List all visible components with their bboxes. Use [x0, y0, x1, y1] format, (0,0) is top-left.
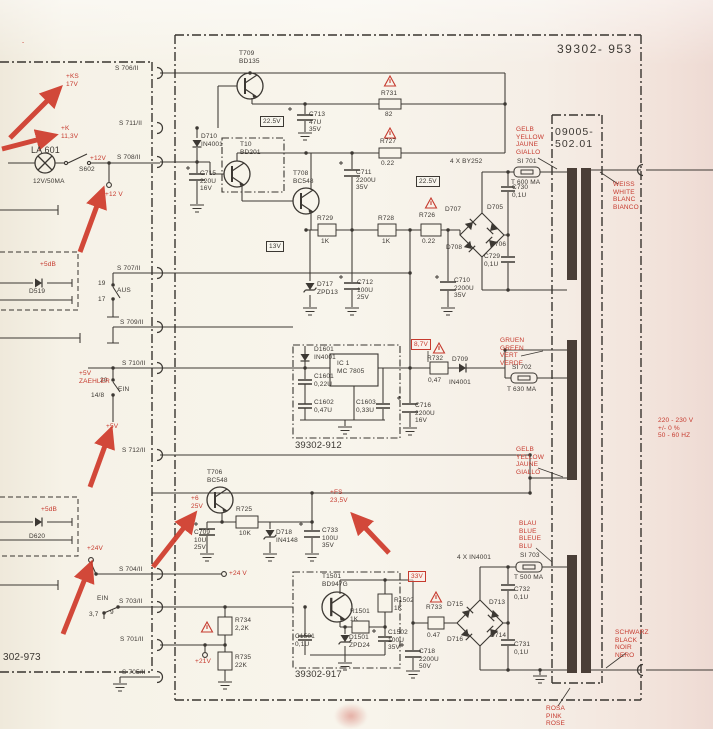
c731-ref: C731 0,1U [514, 641, 530, 656]
sw703-pin37: 3,7 [89, 611, 99, 619]
r731-val: 82 [385, 111, 393, 119]
ann-tick: - [22, 39, 24, 47]
label-layer: 39302- 95309005- 502.01302-97339302-9123… [0, 0, 713, 729]
t708-ref: T708 BC548 [293, 170, 314, 185]
test-22v5-a: 22.5V [260, 116, 284, 127]
r734-ref: R734 2,2K [235, 617, 251, 632]
c709-ref: C709 10U 25V [194, 529, 210, 552]
c729-ref: C729 0,1U [484, 253, 500, 268]
t709-ref: T709 BD135 [239, 50, 260, 65]
ann-21v: +21V [195, 658, 211, 666]
sw710-ein: EIN [118, 386, 129, 394]
conn-s704: S 704/II [119, 566, 143, 574]
wire-gelb-2: GELB YELLOW JAUNE GIALLO [516, 446, 544, 477]
module-912-number: 39302-912 [295, 440, 342, 451]
d1601-ref: D1601 IN4001 [314, 346, 336, 361]
r733-ref: R733 [426, 604, 442, 612]
r728-ref: R728 [378, 215, 394, 223]
conn-s711: S 711/II [119, 120, 142, 128]
ic1-ref: IC 1 MC 7805 [337, 360, 364, 375]
lamp-ref: LA 601 [31, 145, 60, 156]
r727-ref: R727 [380, 138, 396, 146]
r1501-ref: R1501 1K [350, 608, 370, 623]
ann-24v-b: +24 V [229, 570, 247, 578]
test-8v7: 8,7V [411, 339, 431, 350]
r726-val: 0.22 [422, 238, 435, 246]
r732-val: 0,47 [428, 377, 441, 385]
test-22v5-b: 22.5V [416, 176, 440, 187]
r729-val: 1K [321, 238, 329, 246]
r726-ref: R726 [419, 212, 435, 220]
conn-s708: S 708/II [117, 154, 141, 162]
d714-ref: D714 [490, 632, 506, 640]
d716-ref: D716 [447, 636, 463, 644]
si703-ref: SI 703 [520, 552, 540, 560]
d519-gain: +5dB [40, 261, 56, 269]
c715-ref: C715 220U 16V [200, 170, 216, 193]
d708-ref: D708 [446, 244, 462, 252]
wire-gelb-1: GELB YELLOW JAUNE GIALLO [516, 126, 544, 157]
d710-ref: D710 IN4001 [201, 133, 223, 148]
d717-ref: D717 ZPD13 [317, 281, 338, 296]
lamp-rating: 12V/50MA [33, 178, 65, 186]
d709-val: IN4001 [449, 379, 471, 387]
d715-ref: D715 [447, 601, 463, 609]
mains-rating: 220 - 230 V +/- 0 % 50 - 60 HZ [658, 417, 693, 440]
c1501-ref: C1501 0,1U [295, 633, 315, 648]
c718-ref: C718 2200U 50V [419, 648, 439, 671]
main-module-number: 39302- 953 [557, 42, 633, 56]
t706-ref: T706 BC548 [207, 469, 228, 484]
ann-24v-a: +24V [87, 545, 103, 553]
ann-12v-a: +12V [90, 155, 106, 163]
c733-ref: C733 100U 35V [322, 527, 338, 550]
sw707-pin17: 17 [98, 296, 106, 304]
bridge2-type: 4 X IN4001 [457, 554, 491, 562]
d1501-ref: D1501 ZPD24 [349, 634, 370, 649]
si701-ref: SI 701 [517, 158, 537, 166]
conn-s703: S 703/II [119, 598, 143, 606]
conn-s706: S 706/II [115, 65, 139, 73]
wire-schwarz: SCHWARZ BLACK NOIR NERO [615, 629, 649, 660]
c730-ref: C730 0,1U [512, 184, 528, 199]
r728-val: 1K [382, 238, 390, 246]
test-33v: 33V [408, 571, 426, 582]
s602-ref: S602 [79, 166, 95, 174]
sw703-pin9: 9 [110, 609, 114, 617]
wire-weiss: WEISS WHITE BLANC BIANCO [613, 181, 639, 212]
ann-5v-zaehler: +5V ZAEHLER [79, 370, 110, 385]
conn-s707: S 707/II [117, 265, 141, 273]
d706-ref: D706 [490, 241, 506, 249]
c711-ref: C711 2200U 35V [356, 169, 376, 192]
test-13v: 13V [266, 241, 284, 252]
c1602-ref: C1602 0,47U [314, 399, 334, 414]
d718-ref: D718 IN4148 [276, 529, 298, 544]
c713-ref: C713 47U 35V [309, 111, 325, 134]
c1601-ref: C1601 0,22U [314, 373, 334, 388]
r727-val: 0.22 [381, 160, 394, 168]
c732-ref: C732 0,1U [514, 586, 530, 601]
c716-ref: C716 2200U 16V [415, 402, 435, 425]
sw703-ein: EIN [97, 595, 108, 603]
r1502-ref: R1502 1K [394, 597, 414, 612]
ann-6v: +6 25V [191, 495, 203, 510]
t10-ref: T10 BD201 [240, 141, 261, 156]
d709-ref: D709 [452, 356, 468, 364]
ann-ks: +KS 17V [66, 73, 79, 88]
ann-fs: +FS 23,5V [330, 489, 348, 504]
conn-s705: S 705/II [122, 669, 146, 677]
red-smudge [334, 703, 368, 729]
ann-k: +K 11,3V [61, 125, 78, 140]
ann-5v: +5V [106, 423, 118, 431]
c1603-ref: C1603 0,33U [356, 399, 376, 414]
c712-ref: C712 100U 25V [357, 279, 373, 302]
conn-s710: S 710/II [122, 360, 146, 368]
sw707-aus: AUS [117, 287, 131, 295]
r731-ref: R731 [381, 90, 397, 98]
r729-ref: R729 [317, 215, 333, 223]
wire-blau: BLAU BLUE BLEUE BLU [519, 520, 541, 551]
d707-ref: D707 [445, 206, 461, 214]
r732-ref: R732 [427, 355, 443, 363]
left-module-number: 302-973 [3, 652, 41, 664]
r735-ref: R735 22K [235, 654, 251, 669]
r725-val: 10K [239, 530, 251, 538]
bridge1-type: 4 X BY252 [450, 158, 482, 166]
module-917-number: 39302-917 [295, 669, 342, 680]
conn-s712: S 712/II [122, 447, 146, 455]
d620-ref: D620 [29, 533, 45, 541]
si703-val: T 500 MA [514, 574, 543, 582]
d713-ref: D713 [489, 599, 505, 607]
ann-12v-b: +12 V [105, 191, 123, 199]
c1502-ref: C1502 100U 35V [388, 629, 408, 652]
d620-gain: +5dB [41, 506, 57, 514]
r733-val: 0.47 [427, 632, 440, 640]
si702-ref: SI 702 [512, 364, 532, 372]
d519-ref: D519 [29, 288, 45, 296]
transformer-part-number: 09005- 502.01 [555, 126, 594, 151]
scanned-schematic-page: 39302- 95309005- 502.01302-97339302-9123… [0, 0, 713, 729]
wire-rosa: ROSA PINK ROSE [546, 705, 565, 728]
sw707-pin19: 19 [98, 280, 106, 288]
c710-ref: C710 2200U 35V [454, 277, 474, 300]
conn-s709: S 709/II [120, 319, 144, 327]
r725-ref: R725 [236, 506, 252, 514]
conn-s701: S 701/II [120, 636, 144, 644]
d705-ref: D705 [487, 204, 503, 212]
t1501-ref: T1501 BD947G [322, 573, 348, 588]
si702-val: T 630 MA [507, 386, 536, 394]
sw710-pin148: 14/8 [91, 392, 104, 400]
